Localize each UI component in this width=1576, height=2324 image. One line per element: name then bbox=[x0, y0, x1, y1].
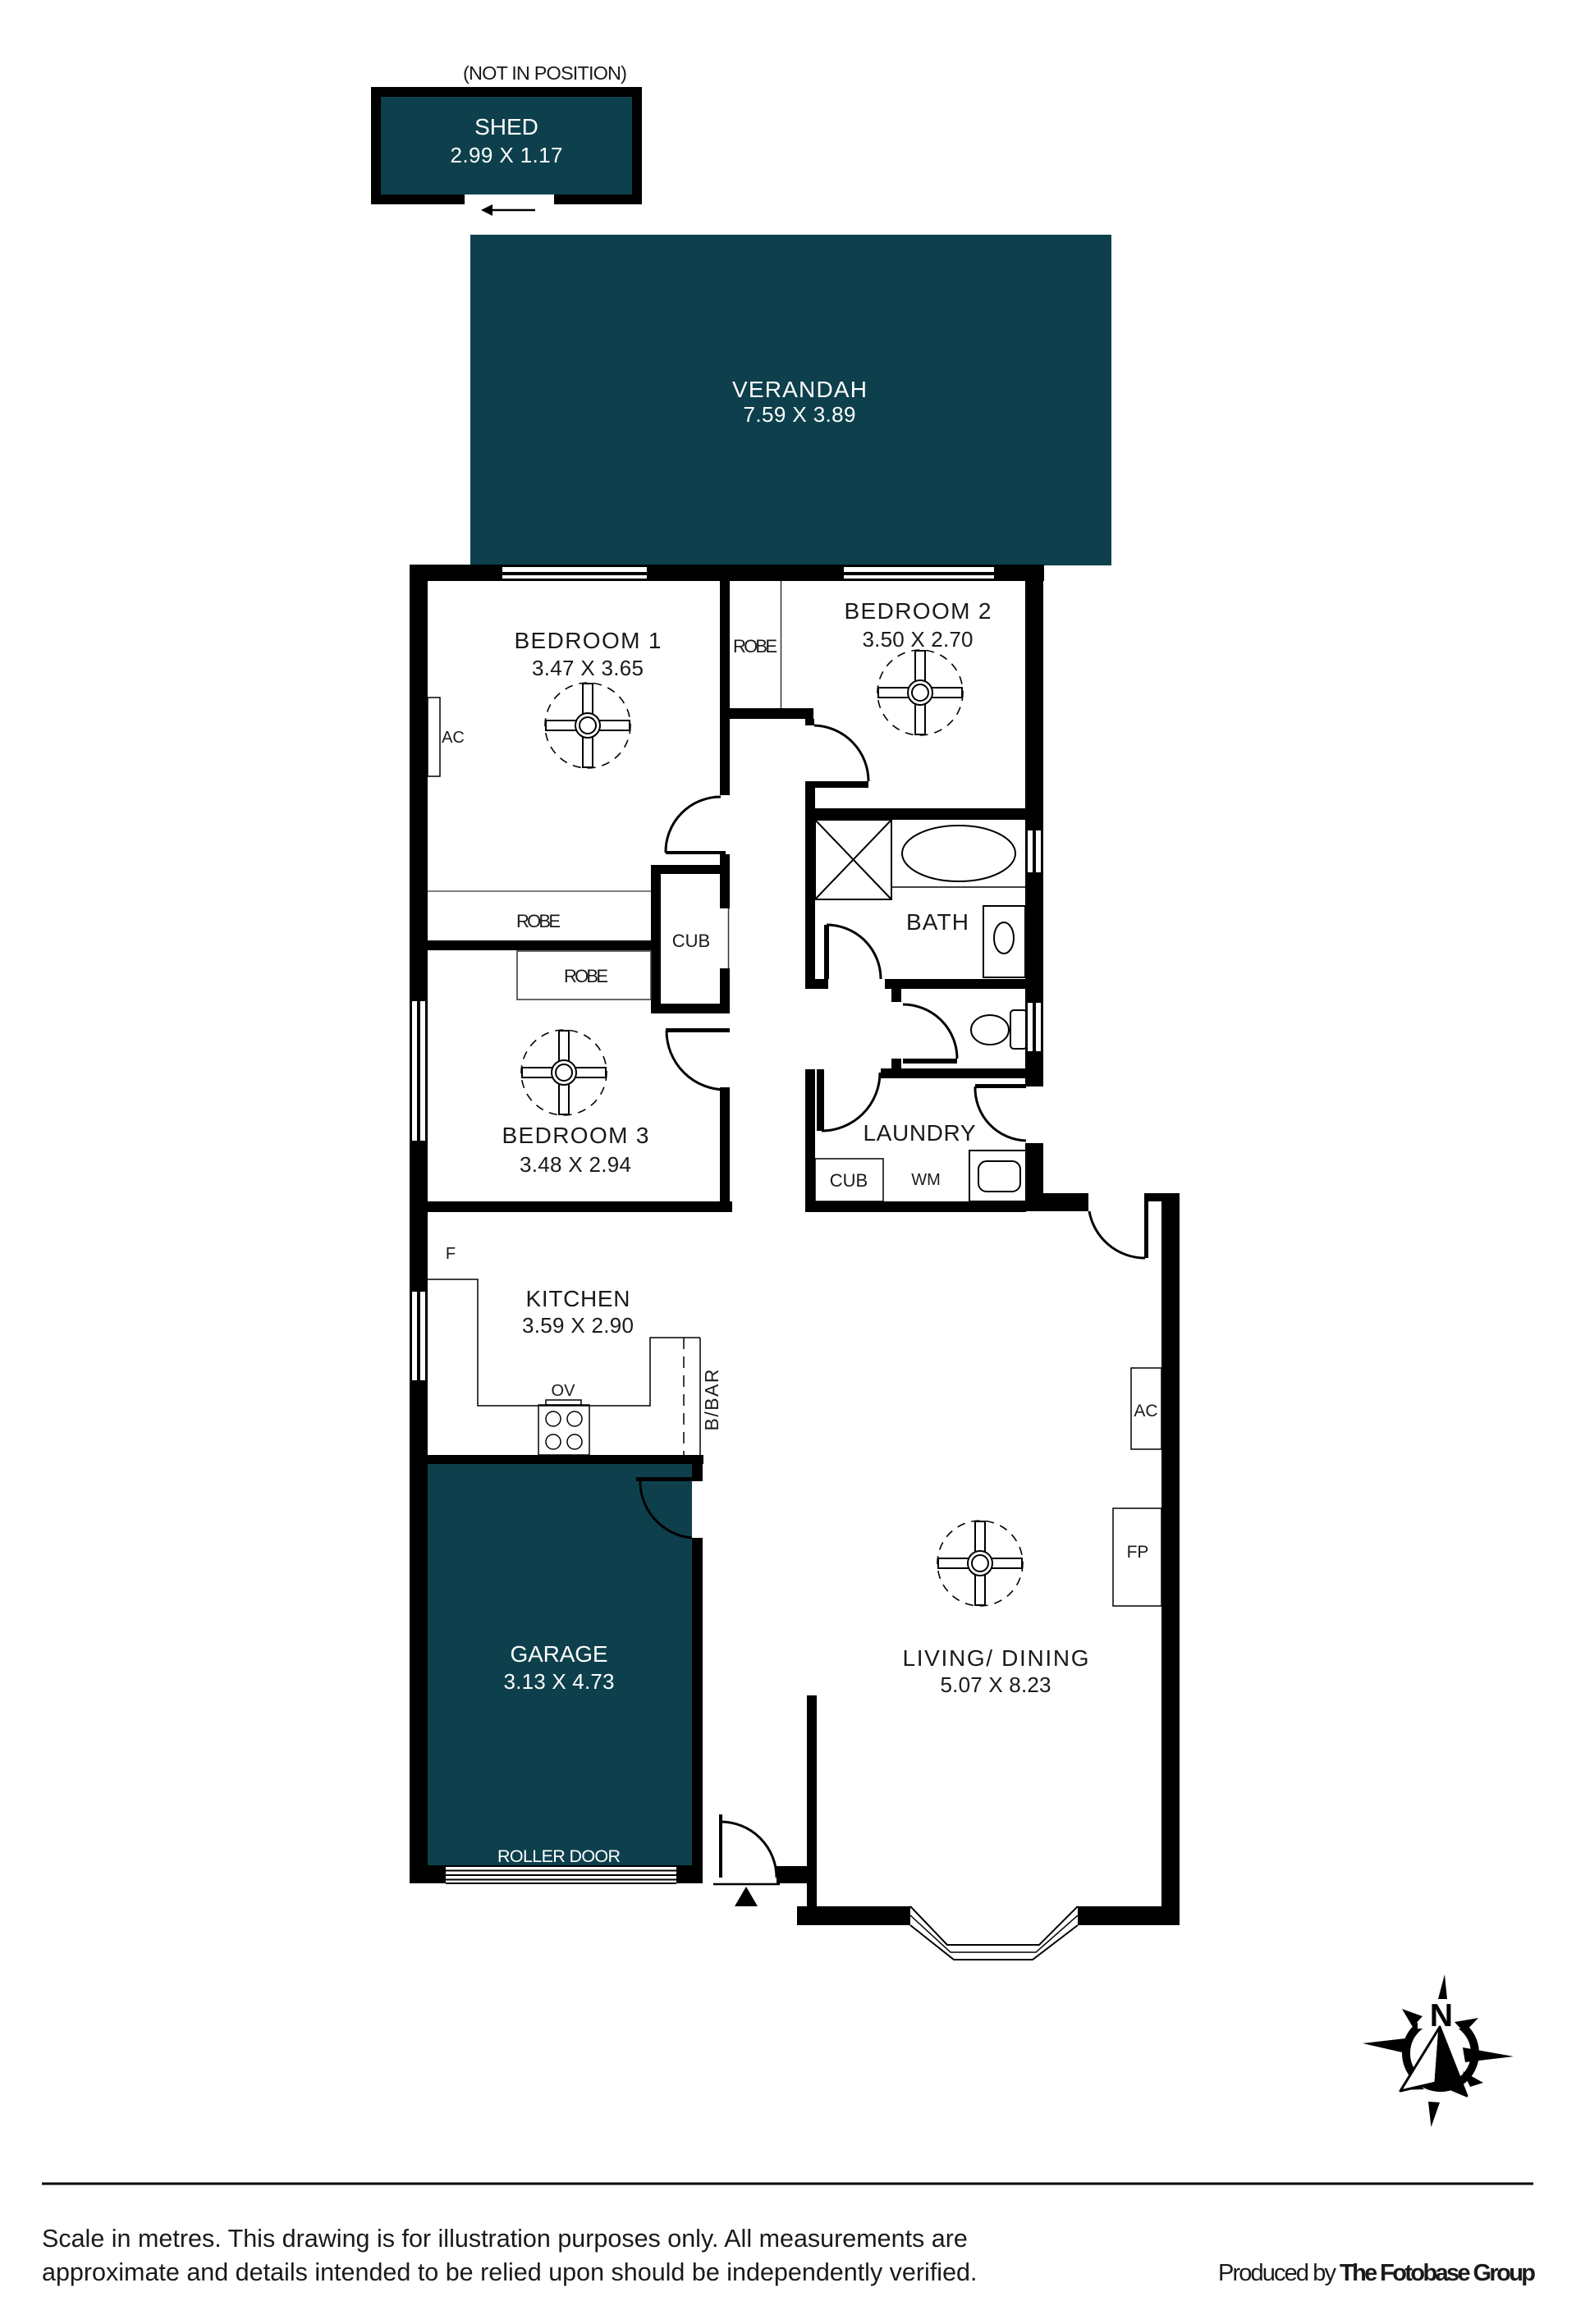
svg-text:5.07 X 8.23: 5.07 X 8.23 bbox=[941, 1672, 1051, 1697]
svg-text:ROBE: ROBE bbox=[516, 911, 561, 931]
svg-text:BEDROOM 2: BEDROOM 2 bbox=[845, 598, 992, 624]
svg-text:AC: AC bbox=[1134, 1402, 1157, 1420]
svg-text:BATH: BATH bbox=[906, 909, 969, 935]
svg-text:AC: AC bbox=[442, 729, 465, 747]
svg-text:LIVING/ DINING: LIVING/ DINING bbox=[903, 1645, 1089, 1671]
svg-text:LAUNDRY: LAUNDRY bbox=[864, 1120, 976, 1146]
svg-text:approximate and details intend: approximate and details intended to be r… bbox=[42, 2258, 977, 2286]
svg-text:VERANDAH: VERANDAH bbox=[732, 377, 867, 402]
svg-text:OV: OV bbox=[552, 1382, 576, 1400]
svg-text:B/BAR: B/BAR bbox=[701, 1370, 722, 1431]
svg-text:WM: WM bbox=[911, 1171, 941, 1189]
svg-text:GARAGE: GARAGE bbox=[511, 1641, 608, 1667]
svg-text:SHED: SHED bbox=[474, 114, 538, 140]
svg-text:FP: FP bbox=[1127, 1543, 1149, 1562]
svg-text:3.50 X 2.70: 3.50 X 2.70 bbox=[863, 627, 974, 652]
svg-text:BEDROOM 1: BEDROOM 1 bbox=[515, 628, 662, 653]
svg-text:BEDROOM 3: BEDROOM 3 bbox=[502, 1123, 649, 1148]
svg-text:The Fotobase Group: The Fotobase Group bbox=[1340, 2260, 1536, 2286]
svg-text:ROBE: ROBE bbox=[564, 966, 608, 986]
svg-text:CUB: CUB bbox=[672, 931, 710, 951]
svg-text:ROLLER DOOR: ROLLER DOOR bbox=[497, 1846, 621, 1866]
svg-text:3.48 X 2.94: 3.48 X 2.94 bbox=[520, 1152, 631, 1177]
svg-text:KITCHEN: KITCHEN bbox=[526, 1286, 630, 1311]
svg-text:Scale in metres. This drawing: Scale in metres. This drawing is for ill… bbox=[42, 2225, 968, 2253]
svg-text:(NOT IN POSITION): (NOT IN POSITION) bbox=[463, 62, 627, 84]
svg-text:F: F bbox=[446, 1245, 456, 1263]
svg-text:3.47 X 3.65: 3.47 X 3.65 bbox=[532, 656, 644, 680]
svg-text:ROBE: ROBE bbox=[733, 636, 777, 656]
svg-text:Produced by: Produced by bbox=[1218, 2260, 1337, 2286]
svg-text:3.59 X 2.90: 3.59 X 2.90 bbox=[522, 1313, 634, 1338]
svg-text:3.13 X 4.73: 3.13 X 4.73 bbox=[504, 1669, 615, 1694]
svg-text:CUB: CUB bbox=[830, 1170, 868, 1191]
svg-text:2.99 X 1.17: 2.99 X 1.17 bbox=[451, 143, 563, 167]
svg-text:7.59 X 3.89: 7.59 X 3.89 bbox=[744, 402, 856, 427]
